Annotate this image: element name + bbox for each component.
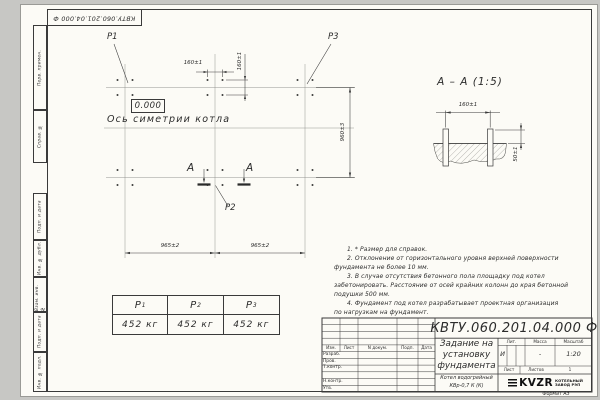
- rev-col-data: Дата: [418, 346, 435, 350]
- lit-label: Лит.: [498, 340, 525, 344]
- rev-col-ndoc: N докум.: [358, 346, 397, 350]
- doc-number: КВТУ.060.201.04.000 Ф: [436, 319, 592, 337]
- loads-table-header-p3: P3: [224, 296, 279, 315]
- product-name-line1: Котел водогрейный: [436, 376, 497, 381]
- section-dimension-arrows: [446, 111, 522, 148]
- note-line: 2. Отклонение от горизонтального уровня …: [334, 254, 596, 263]
- note-line: подушки 500 мм.: [334, 290, 596, 299]
- logo-text: KVZR: [519, 378, 553, 389]
- loads-table-value-p3: 452 кг: [224, 315, 279, 334]
- manufacturer-logo: KVZR КОТЕЛЬНЫЙ ЗАВОД РЭП: [500, 375, 591, 391]
- sheets-label: Листов: [522, 368, 550, 372]
- format-label: Формат А3: [531, 393, 581, 398]
- plan-dimension-lines: [114, 44, 355, 253]
- dim-section-protrusion: 50±1: [513, 142, 521, 166]
- loads-table: P1 P2 P3 452 кг 452 кг 452 кг: [112, 295, 280, 335]
- note-line: 3. В случае отсутствия бетонного пола пл…: [334, 272, 596, 281]
- loads-table-value-p1: 452 кг: [113, 315, 168, 334]
- doc-title-line2: установку: [436, 351, 497, 360]
- point-label-p1: P1: [107, 33, 118, 42]
- doc-title-line3: фундамента: [436, 362, 497, 371]
- logo-caption: КОТЕЛЬНЫЙ ЗАВОД РЭП: [555, 379, 583, 388]
- margin-box-podp-data-2: Подп. и дата: [33, 312, 47, 352]
- role-prov: Пров.: [323, 360, 336, 364]
- section-cut-marks: [198, 169, 251, 185]
- rev-col-izm: Изм.: [322, 346, 340, 350]
- doc-title-line1: Задание на: [436, 340, 497, 349]
- logo-bars-icon: [508, 379, 517, 387]
- technical-notes: 1. * Размер для справок. 2. Отклонение о…: [334, 245, 596, 317]
- dim-col-spacing-left: 965±2: [152, 244, 188, 250]
- section-letter-left: А: [187, 163, 194, 174]
- corner-stamp-number: КВТУ.060.201.04.000 Ф: [53, 14, 135, 20]
- margin-box-perv-primen: Перв. примен.: [33, 25, 47, 110]
- note-line: 1. * Размер для справок.: [334, 245, 596, 254]
- margin-box-inv-dubl: Инв. № дубл.: [33, 240, 47, 277]
- section-view-title: А – А (1:5): [430, 77, 510, 88]
- sheet-label: Лист: [498, 368, 520, 372]
- elevation-mark: 0.000: [131, 99, 165, 113]
- note-line: забетонировать. Расстояние от осей крайн…: [334, 281, 596, 290]
- note-line: по нагрузкам на фундамент.: [334, 308, 596, 317]
- section-letter-right: А: [246, 163, 253, 174]
- loads-table-header-p2: P2: [168, 296, 223, 315]
- role-nkontr: Н.контр.: [323, 380, 343, 384]
- role-razrab: Разраб.: [323, 353, 340, 357]
- rev-col-podp: Подп.: [397, 346, 418, 350]
- role-utv: Утв.: [323, 387, 332, 391]
- lit-value: И: [498, 351, 507, 358]
- product-name-line2: КВр-0,7 К (К): [436, 384, 497, 389]
- note-line: 4. Фундамент под котел разрабатывает про…: [334, 299, 596, 308]
- dim-section-bolt-spacing: 160±1: [449, 103, 487, 109]
- scale-value: 1:20: [555, 351, 592, 358]
- loads-table-value-p2: 452 кг: [168, 315, 223, 334]
- mass-label: Масса: [525, 340, 555, 344]
- note-line: фундамента не более 10 мм.: [334, 263, 596, 272]
- dim-bolt-spacing-y: 160±1: [237, 48, 245, 74]
- margin-box-sprav-n: Справ. №: [33, 110, 47, 163]
- margin-box-inv-podl: Инв. № подл.: [33, 352, 47, 392]
- point-label-p2: P2: [225, 204, 236, 213]
- elevation-value: 0.000: [135, 102, 162, 111]
- dim-bolt-spacing-x: 160±1: [180, 61, 206, 67]
- rev-col-list: Лист: [340, 346, 358, 350]
- role-tkontr: Т.контр.: [323, 366, 342, 370]
- mass-value: -: [525, 351, 555, 358]
- margin-box-vzam-inv: Взам. инв. №: [33, 277, 47, 312]
- scale-label: Масштаб: [555, 340, 592, 344]
- corner-stamp: КВТУ.060.201.04.000 Ф: [47, 9, 142, 26]
- dim-row-spacing: 960±3: [340, 118, 348, 146]
- plan-centerlines: [104, 54, 354, 258]
- dim-col-spacing-right: 965±2: [242, 244, 278, 250]
- sheets-value: 1: [560, 368, 580, 372]
- point-label-p3: P3: [328, 33, 339, 42]
- margin-box-podp-data-1: Подп. и дата: [33, 193, 47, 240]
- loads-table-header-p1: P1: [113, 296, 168, 315]
- scanned-drawing-page: КВТУ.060.201.04.000 Ф Перв. примен. Спра…: [0, 0, 600, 400]
- axis-of-symmetry-label: Ось симетрии котла: [107, 115, 230, 125]
